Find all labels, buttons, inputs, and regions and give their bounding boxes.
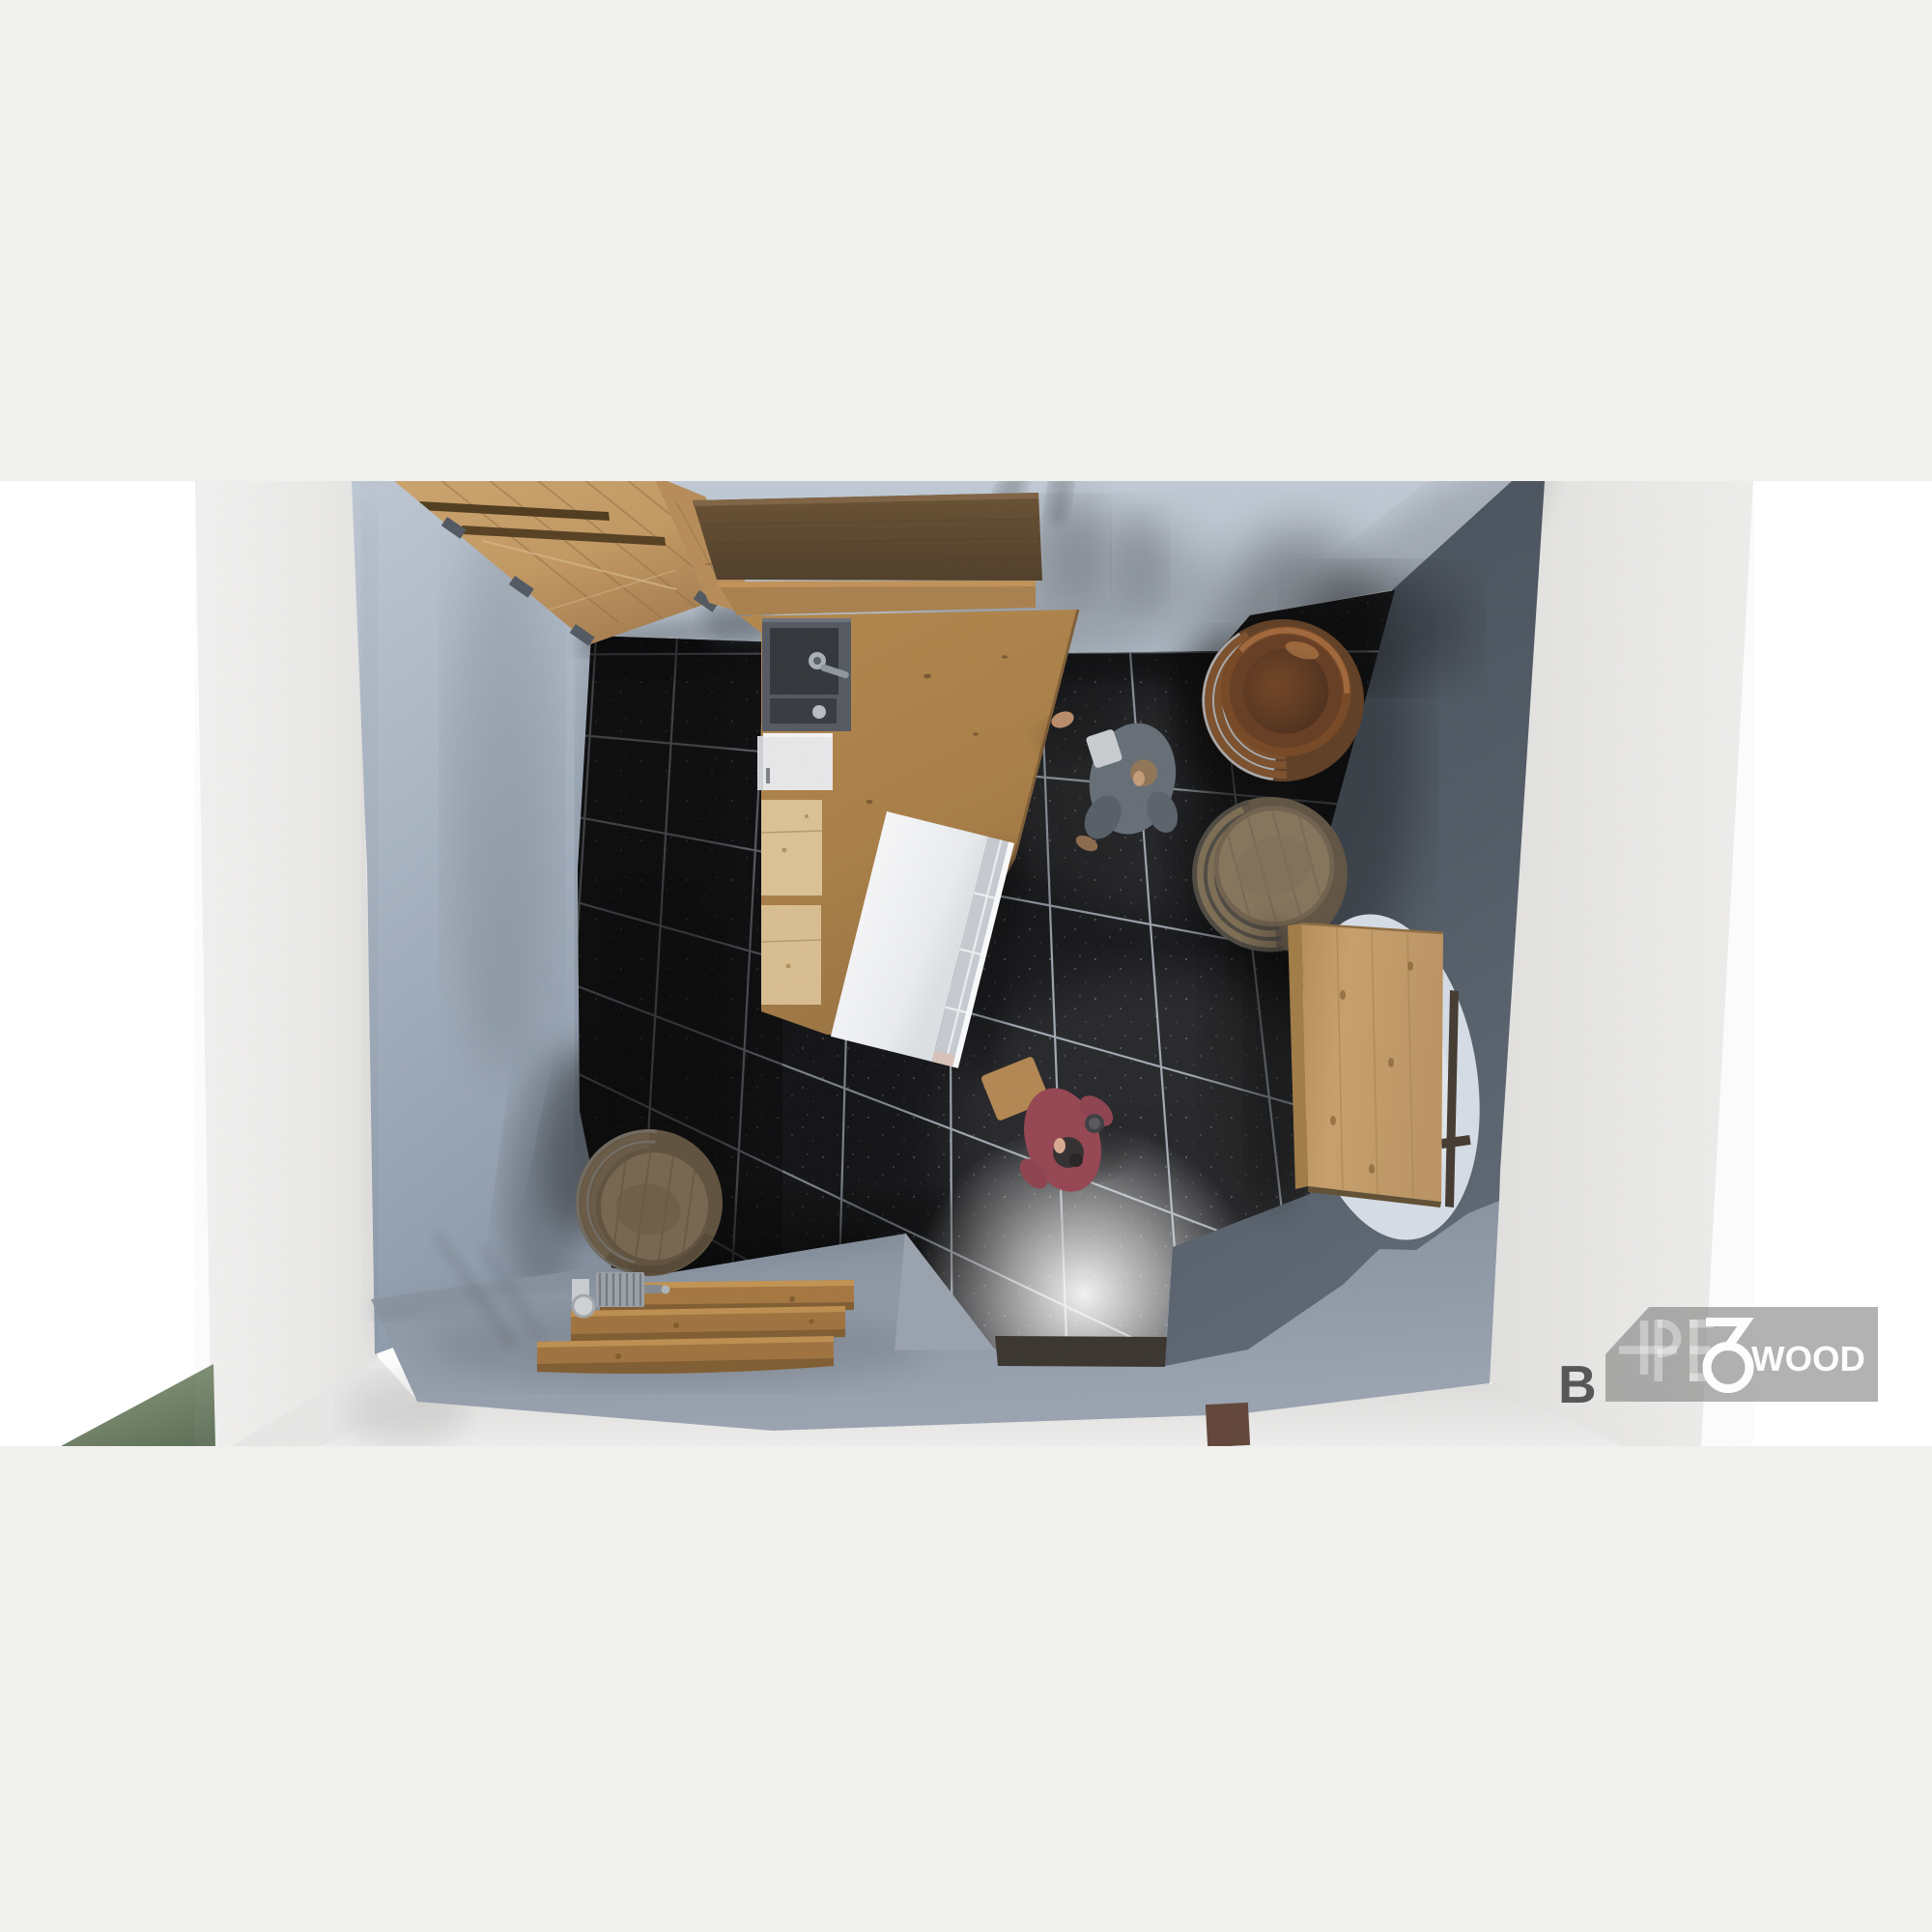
- svg-text:B: B: [1558, 1354, 1597, 1414]
- svg-text:WOOD: WOOD: [1751, 1339, 1865, 1378]
